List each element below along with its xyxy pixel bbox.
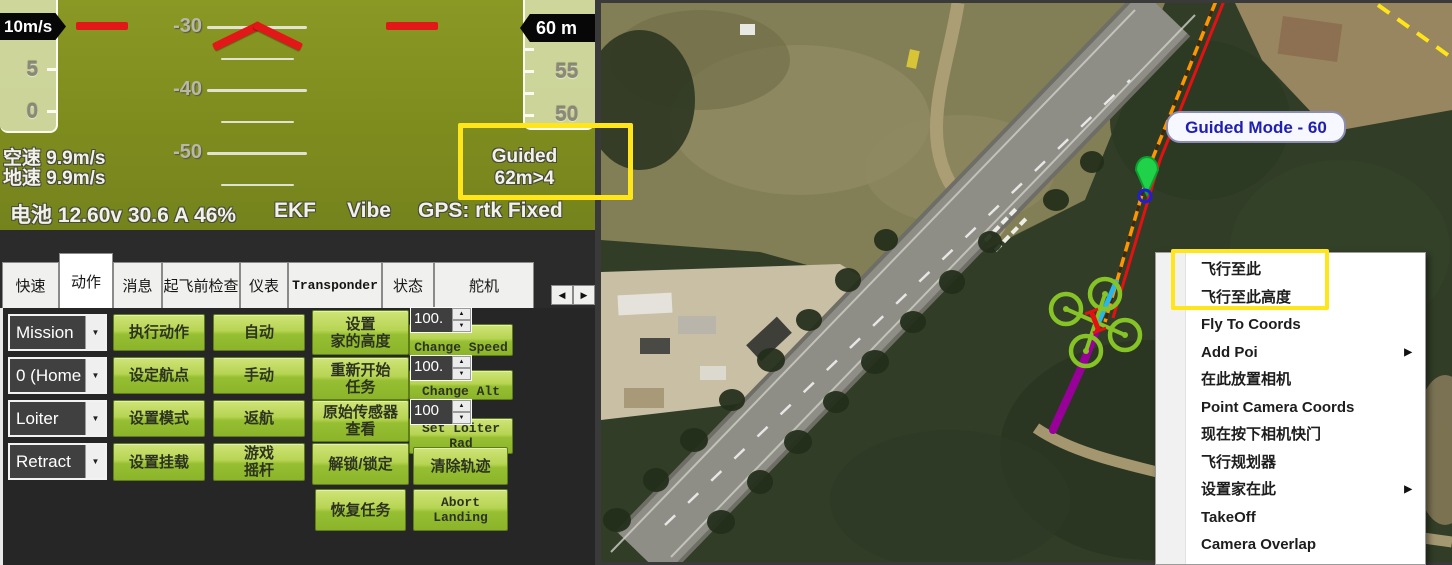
tab-gauges[interactable]: 仪表 bbox=[240, 262, 288, 308]
ekf-indicator[interactable]: EKF bbox=[274, 199, 316, 223]
clear-track-button[interactable]: 清除轨迹 bbox=[413, 447, 508, 485]
chevron-down-icon[interactable]: ▼ bbox=[85, 445, 105, 478]
mission-command-dropdown[interactable]: Mission▼ bbox=[8, 314, 107, 351]
vibe-indicator[interactable]: Vibe bbox=[347, 199, 391, 223]
set-home-alt-button[interactable]: 设置 家的高度 bbox=[312, 310, 409, 355]
tab-messages[interactable]: 消息 bbox=[113, 262, 162, 308]
stepper-up-icon[interactable]: ▲ bbox=[452, 356, 471, 368]
manual-button[interactable]: 手动 bbox=[213, 357, 305, 394]
gps-status: GPS: rtk Fixed bbox=[418, 199, 563, 223]
pitch-label: -30 bbox=[160, 15, 202, 38]
menu-item-camera-overlap[interactable]: Camera Overlap bbox=[1156, 531, 1425, 559]
tab-status[interactable]: 状态 bbox=[382, 262, 434, 308]
pitch-line-minor bbox=[221, 121, 294, 123]
tab-bar: 快速 动作 消息 起飞前检查 仪表 Transponder 状态 舵机 ◀ ▶ bbox=[0, 230, 595, 308]
set-mode-button[interactable]: 设置模式 bbox=[113, 400, 205, 437]
mode-dropdown[interactable]: Loiter▼ bbox=[8, 400, 107, 437]
tab-quick[interactable]: 快速 bbox=[2, 262, 59, 308]
aircraft-wing-right bbox=[386, 22, 438, 30]
loiter-radius-stepper[interactable]: 100 ▲▼ bbox=[410, 399, 472, 425]
airspeed-value-box: 10m/s bbox=[0, 13, 66, 40]
rtl-button[interactable]: 返航 bbox=[213, 400, 305, 437]
pitch-line bbox=[207, 89, 307, 92]
stepper-up-icon[interactable]: ▲ bbox=[452, 308, 471, 320]
tab-servo[interactable]: 舵机 bbox=[434, 262, 534, 308]
alt-stepper[interactable]: 100. ▲▼ bbox=[410, 355, 472, 381]
mode-tooltip: Guided Mode - 60 bbox=[1167, 112, 1345, 142]
chevron-down-icon[interactable]: ▼ bbox=[85, 402, 105, 435]
waypoint-dropdown[interactable]: 0 (Home▼ bbox=[8, 357, 107, 394]
stepper-down-icon[interactable]: ▼ bbox=[452, 320, 471, 332]
tab-actions[interactable]: 动作 bbox=[59, 253, 113, 308]
battery-readout[interactable]: 电池 12.60v 30.6 A 46% bbox=[10, 199, 236, 229]
stepper-down-icon[interactable]: ▼ bbox=[452, 368, 471, 380]
joystick-button[interactable]: 游戏 摇杆 bbox=[213, 443, 305, 481]
mount-mode-dropdown[interactable]: Retract▼ bbox=[8, 443, 107, 480]
menu-item-point-camera-coords[interactable]: Point Camera Coords bbox=[1156, 394, 1425, 422]
svg-text:Guided Mode - 60: Guided Mode - 60 bbox=[1185, 118, 1327, 137]
submenu-arrow-icon: ▶ bbox=[1404, 476, 1412, 504]
do-action-button[interactable]: 执行动作 bbox=[113, 314, 205, 351]
actions-tab-content: Mission▼ 0 (Home▼ Loiter▼ Retract▼ 执行动作 … bbox=[0, 308, 595, 565]
tab-scroll-right-button[interactable]: ▶ bbox=[573, 285, 595, 305]
menu-item-trigger-camera-now[interactable]: 现在按下相机快门 bbox=[1156, 421, 1425, 449]
speed-tick-label: 0 bbox=[26, 100, 38, 124]
arm-disarm-button[interactable]: 解锁/锁定 bbox=[312, 443, 409, 485]
menu-item-takeoff[interactable]: TakeOff bbox=[1156, 504, 1425, 532]
highlight-rect-guided-status bbox=[458, 123, 633, 200]
altitude-value-box: 60 m bbox=[520, 14, 595, 42]
aircraft-wing-left bbox=[76, 22, 128, 30]
pitch-line-minor bbox=[221, 58, 294, 60]
resume-mission-button[interactable]: 恢复任务 bbox=[315, 489, 406, 531]
pitch-label: -50 bbox=[160, 141, 202, 164]
tab-preflight[interactable]: 起飞前检查 bbox=[162, 262, 240, 308]
auto-button[interactable]: 自动 bbox=[213, 314, 305, 351]
submenu-arrow-icon: ▶ bbox=[1404, 339, 1412, 367]
chevron-down-icon[interactable]: ▼ bbox=[85, 359, 105, 392]
tab-scroll-left-button[interactable]: ◀ bbox=[551, 285, 573, 305]
restart-mission-button[interactable]: 重新开始 任务 bbox=[312, 357, 409, 400]
flight-data-panel: -30 -40 -50 5 0 10m/s bbox=[0, 0, 595, 565]
chevron-down-icon[interactable]: ▼ bbox=[85, 316, 105, 349]
pitch-line bbox=[207, 152, 307, 155]
tab-transponder[interactable]: Transponder bbox=[288, 262, 382, 308]
raw-sensor-view-button[interactable]: 原始传感器 查看 bbox=[312, 400, 409, 442]
stepper-down-icon[interactable]: ▼ bbox=[452, 412, 471, 424]
pitch-line-minor bbox=[221, 184, 294, 186]
speed-stepper[interactable]: 100. ▲▼ bbox=[410, 307, 472, 333]
pitch-label: -40 bbox=[160, 78, 202, 101]
set-mount-button[interactable]: 设置挂载 bbox=[113, 443, 205, 481]
speed-tick-label: 5 bbox=[26, 58, 38, 82]
menu-item-add-poi[interactable]: Add Poi▶ bbox=[1156, 339, 1425, 367]
menu-item-flight-planner[interactable]: 飞行规划器 bbox=[1156, 449, 1425, 477]
abort-landing-button[interactable]: Abort Landing bbox=[413, 489, 508, 531]
groundspeed-readout: 地速 9.9m/s bbox=[3, 163, 105, 190]
set-waypoint-button[interactable]: 设定航点 bbox=[113, 357, 205, 394]
menu-item-place-camera-here[interactable]: 在此放置相机 bbox=[1156, 366, 1425, 394]
menu-item-fly-to-coords[interactable]: Fly To Coords bbox=[1156, 311, 1425, 339]
mission-planner-window: -30 -40 -50 5 0 10m/s bbox=[0, 0, 1452, 565]
menu-item-set-home-here[interactable]: 设置家在此▶ bbox=[1156, 476, 1425, 504]
alt-tick-label: 55 bbox=[555, 60, 578, 84]
stepper-up-icon[interactable]: ▲ bbox=[452, 400, 471, 412]
highlight-rect-menu-fly-items bbox=[1171, 249, 1329, 310]
